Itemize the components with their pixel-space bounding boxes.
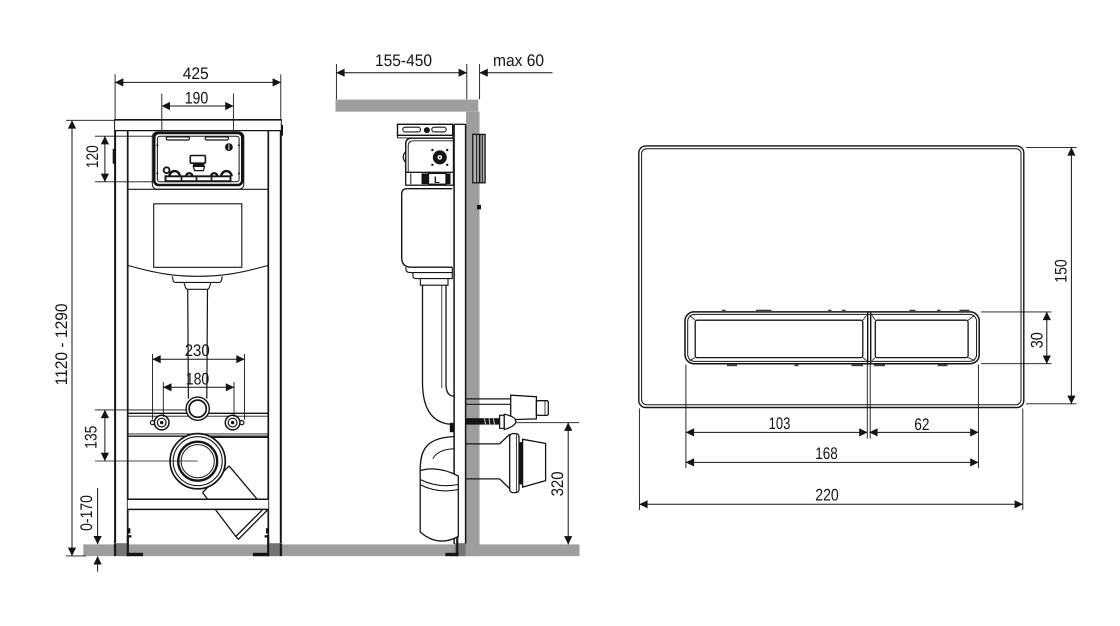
svg-text:320: 320 bbox=[548, 471, 567, 496]
svg-text:230: 230 bbox=[185, 341, 210, 360]
svg-text:180: 180 bbox=[186, 369, 210, 388]
svg-text:155-450: 155-450 bbox=[375, 51, 432, 70]
svg-text:62: 62 bbox=[914, 415, 929, 434]
svg-text:L: L bbox=[434, 175, 440, 186]
svg-text:168: 168 bbox=[815, 444, 838, 463]
svg-text:1120 - 1290: 1120 - 1290 bbox=[52, 303, 71, 385]
svg-text:150: 150 bbox=[1051, 259, 1070, 283]
svg-text:120: 120 bbox=[83, 145, 102, 168]
svg-text:425: 425 bbox=[183, 64, 209, 83]
svg-text:190: 190 bbox=[185, 88, 209, 107]
svg-text:30: 30 bbox=[1027, 332, 1046, 348]
svg-text:220: 220 bbox=[815, 486, 839, 505]
svg-text:0-170: 0-170 bbox=[77, 495, 96, 531]
svg-text:103: 103 bbox=[769, 414, 791, 433]
svg-text:max 60: max 60 bbox=[493, 51, 544, 70]
svg-text:135: 135 bbox=[81, 426, 100, 449]
